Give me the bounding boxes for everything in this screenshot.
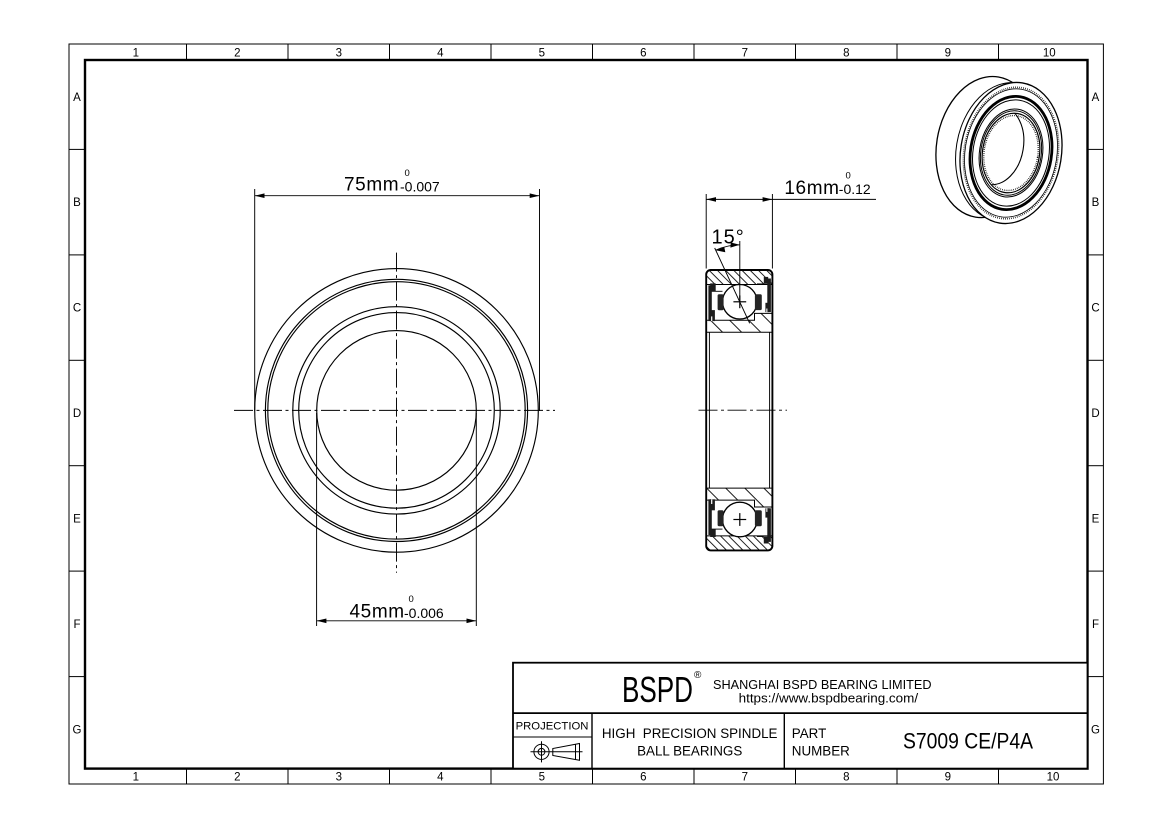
svg-text:4: 4: [437, 772, 444, 784]
svg-text:9: 9: [945, 772, 951, 784]
svg-text:0: 0: [409, 594, 414, 605]
svg-text:E: E: [1092, 514, 1100, 526]
svg-text:0: 0: [405, 168, 410, 179]
svg-text:PART: PART: [792, 726, 826, 741]
svg-text:F: F: [1092, 619, 1099, 631]
svg-text:B: B: [1092, 197, 1100, 209]
svg-text:0: 0: [846, 170, 851, 181]
svg-text:®: ®: [694, 670, 702, 681]
svg-text:6: 6: [640, 47, 646, 59]
svg-text:16mm: 16mm: [784, 178, 839, 199]
svg-text:8: 8: [843, 772, 849, 784]
svg-text:F: F: [73, 619, 80, 631]
svg-text:5: 5: [539, 47, 545, 59]
svg-text:NUMBER: NUMBER: [792, 744, 850, 759]
svg-text:A: A: [1092, 92, 1100, 104]
svg-text:D: D: [73, 408, 81, 420]
svg-text:10: 10: [1043, 47, 1056, 59]
svg-text:6: 6: [640, 772, 646, 784]
svg-text:-0.006: -0.006: [404, 605, 444, 621]
svg-text:3: 3: [336, 772, 342, 784]
svg-text:4: 4: [437, 47, 444, 59]
svg-text:BSPD: BSPD: [622, 669, 693, 710]
svg-text:HIGH PRECISION SPINDLE: HIGH PRECISION SPINDLE: [602, 726, 778, 741]
svg-text:BALL BEARINGS: BALL BEARINGS: [637, 744, 742, 759]
svg-text:A: A: [73, 92, 81, 104]
svg-text:C: C: [1091, 303, 1099, 315]
svg-text:S7009 CE/P4A: S7009 CE/P4A: [903, 729, 1033, 754]
svg-text:G: G: [1091, 724, 1100, 736]
svg-text:C: C: [73, 303, 81, 315]
svg-text:2: 2: [234, 47, 240, 59]
svg-text:7: 7: [742, 47, 748, 59]
svg-text:2: 2: [234, 772, 240, 784]
svg-text:G: G: [73, 724, 82, 736]
svg-text:https://www.bspdbearing.com/: https://www.bspdbearing.com/: [739, 690, 919, 705]
svg-text:15°: 15°: [712, 227, 745, 249]
svg-text:1: 1: [133, 47, 139, 59]
svg-text:-0.12: -0.12: [839, 181, 871, 197]
svg-text:D: D: [1091, 408, 1099, 420]
svg-text:B: B: [73, 197, 81, 209]
svg-text:PROJECTION: PROJECTION: [516, 721, 589, 733]
svg-text:9: 9: [945, 47, 951, 59]
svg-text:3: 3: [336, 47, 342, 59]
svg-text:75mm: 75mm: [344, 175, 399, 196]
svg-text:-0.007: -0.007: [400, 178, 440, 194]
svg-text:8: 8: [843, 47, 849, 59]
svg-text:E: E: [73, 514, 81, 526]
svg-text:45mm: 45mm: [350, 601, 405, 622]
svg-text:10: 10: [1047, 772, 1060, 784]
svg-text:1: 1: [133, 772, 139, 784]
svg-text:5: 5: [539, 772, 545, 784]
svg-text:7: 7: [742, 772, 748, 784]
